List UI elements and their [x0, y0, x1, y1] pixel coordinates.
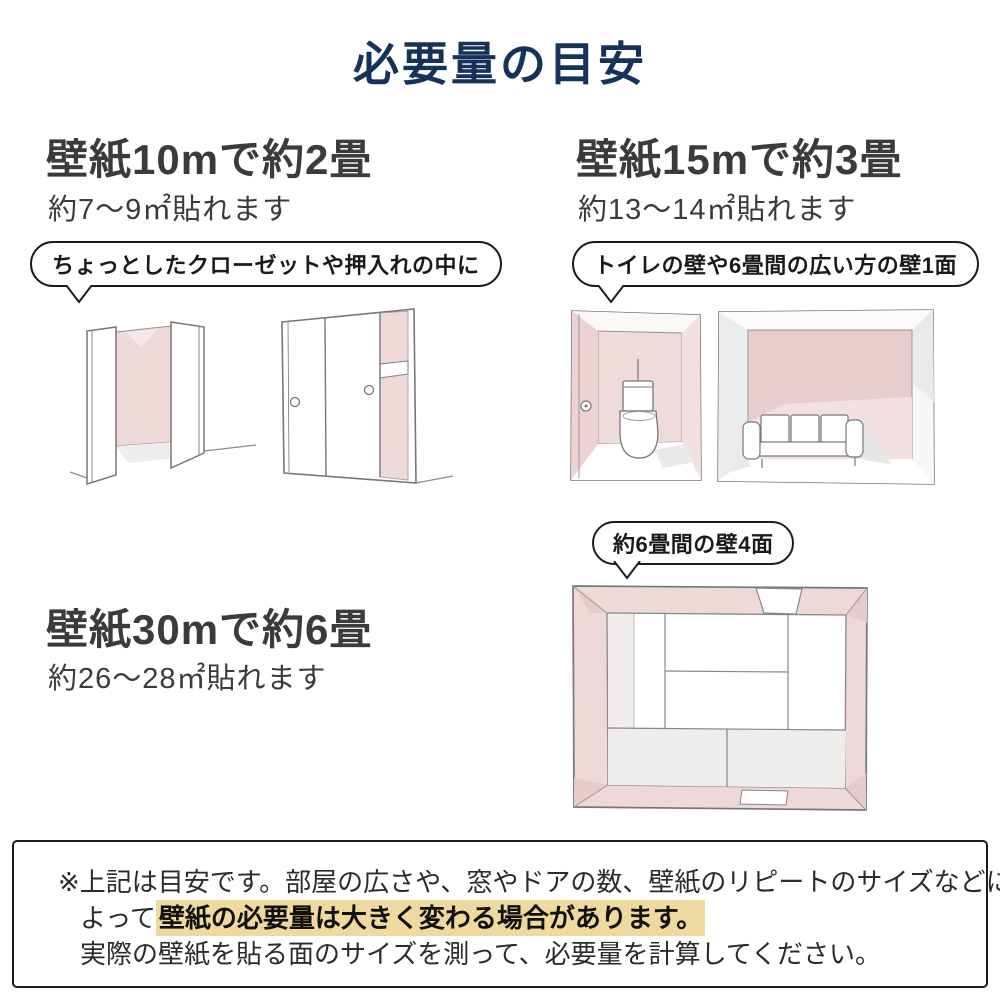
living-room-sofa-illustration: [715, 302, 945, 490]
speech-bubble-15m-label: トイレの壁や6畳間の広い方の壁1面: [594, 248, 957, 280]
speech-bubble-30m-label: 約6畳間の壁4面: [613, 527, 773, 559]
note-highlighted-text: 壁紙の必要量は大きく変わる場合があります。: [156, 900, 705, 936]
wallpaper-quantity-guide: 必要量の目安 壁紙10mで約2畳 約7〜9㎡貼れます ちょっとしたクローゼットや…: [0, 0, 1000, 1000]
note-line-2-prefix: よって: [80, 903, 156, 933]
speech-bubble-15m: トイレの壁や6畳間の広い方の壁1面: [572, 241, 979, 287]
speech-bubble-10m-label: ちょっとしたクローゼットや押入れの中に: [52, 248, 480, 280]
closet-open-doors-illustration: [70, 305, 260, 505]
note-box: ※上記は目安です。部屋の広さや、窓やドアの数、壁紙のリピートのサイズなどに よっ…: [12, 840, 988, 988]
speech-bubble-30m: 約6畳間の壁4面: [592, 521, 794, 565]
subtext-10m: 約7〜9㎡貼れます: [48, 186, 292, 228]
note-line-2: よって壁紙の必要量は大きく変わる場合があります。: [80, 900, 956, 936]
speech-bubble-10m: ちょっとしたクローゼットや押入れの中に: [30, 241, 502, 287]
heading-15m: 壁紙15mで約3畳: [576, 126, 902, 187]
note-line-1: ※上記は目安です。部屋の広さや、窓やドアの数、壁紙のリピートのサイズなどに: [58, 864, 956, 900]
speech-bubble-tail-icon: [612, 561, 642, 581]
subtext-15m: 約13〜14㎡貼れます: [578, 186, 857, 228]
six-tatami-room-top-view-illustration: [570, 583, 870, 815]
page-title: 必要量の目安: [0, 28, 1000, 94]
toilet-room-illustration: [563, 302, 711, 490]
subtext-30m: 約26〜28㎡貼れます: [48, 655, 327, 697]
note-line-3: 実際の壁紙を貼る面のサイズを測って、必要量を計算してください。: [80, 936, 956, 972]
heading-10m: 壁紙10mで約2畳: [46, 126, 372, 187]
closet-sliding-doors-illustration: [268, 300, 453, 505]
speech-bubble-tail-icon: [64, 285, 94, 305]
heading-30m: 壁紙30mで約6畳: [46, 596, 372, 657]
